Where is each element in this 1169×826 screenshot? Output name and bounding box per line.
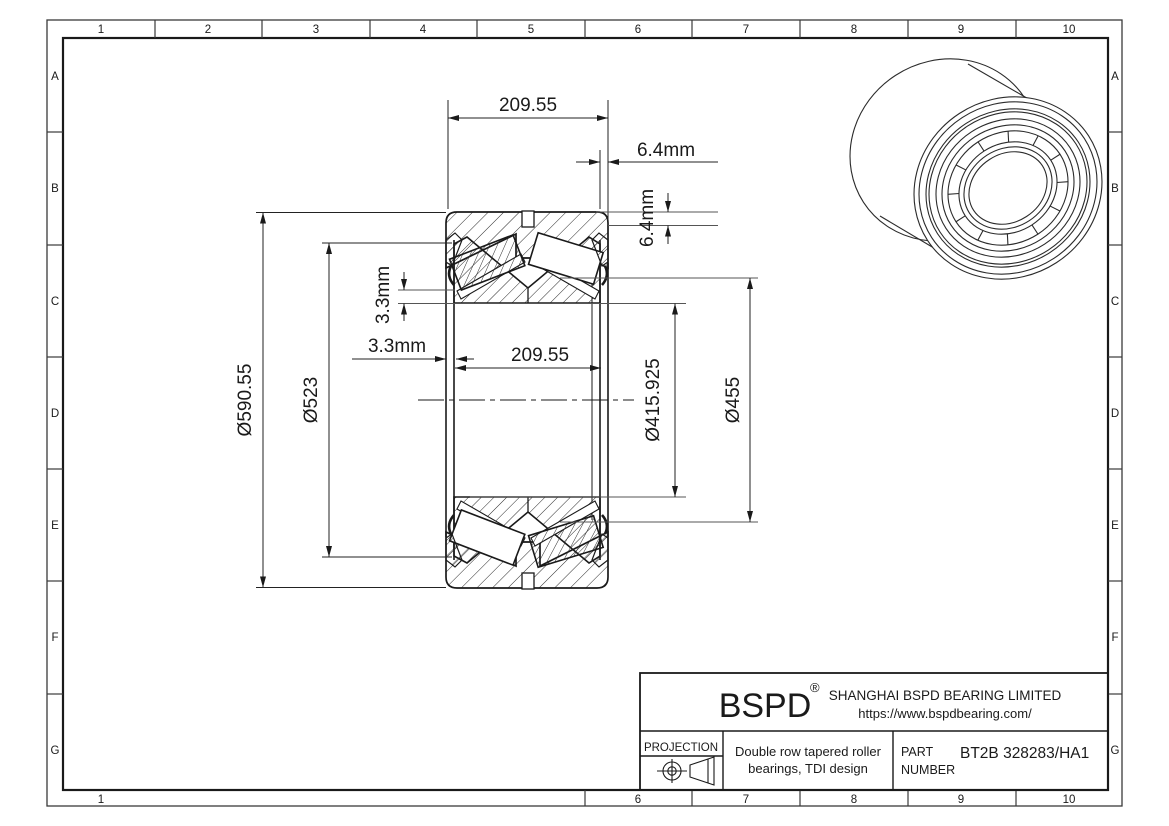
col-label: 2 bbox=[205, 24, 211, 36]
projection-label: PROJECTION bbox=[644, 742, 718, 754]
row-label-right: A bbox=[1111, 71, 1119, 83]
cross-section-view bbox=[418, 211, 634, 589]
row-label: E bbox=[51, 520, 59, 532]
row-label: A bbox=[51, 71, 59, 83]
row-label-right: B bbox=[1111, 183, 1119, 195]
col-label: 6 bbox=[635, 24, 641, 36]
dim-inner-ring-diameter: Ø455 bbox=[723, 377, 744, 423]
col-label: 4 bbox=[420, 24, 427, 36]
dim-inner-width: 209.55 bbox=[511, 345, 569, 366]
col-label: 8 bbox=[851, 24, 857, 36]
part-label-line2: NUMBER bbox=[901, 763, 955, 777]
col-label: 10 bbox=[1063, 24, 1076, 36]
col-label-bottom: 9 bbox=[958, 794, 964, 806]
row-label-right: E bbox=[1111, 520, 1119, 532]
col-label: 7 bbox=[743, 24, 749, 36]
company-logo: BSPD bbox=[719, 687, 812, 725]
isometric-view bbox=[815, 23, 1137, 315]
col-label: 1 bbox=[98, 24, 104, 36]
col-label-bottom: 1 bbox=[98, 794, 104, 806]
dim-outer-diameter: Ø590.55 bbox=[235, 364, 256, 437]
row-label: B bbox=[51, 183, 59, 195]
bottom-band-dividers bbox=[585, 790, 1016, 806]
registered-mark: ® bbox=[810, 680, 820, 695]
lube-hole bbox=[522, 573, 534, 589]
dim-left-offset-v: 3.3mm bbox=[373, 266, 394, 324]
col-label-bottom: 10 bbox=[1063, 794, 1076, 806]
cage-hook bbox=[602, 515, 607, 534]
dim-right-offset-h: 6.4mm bbox=[637, 140, 695, 161]
col-label-bottom: 8 bbox=[851, 794, 857, 806]
top-band-dividers bbox=[155, 20, 1016, 38]
lube-hole bbox=[522, 211, 534, 227]
title-block: BSPD ® SHANGHAI BSPD BEARING LIMITED htt… bbox=[640, 673, 1108, 790]
row-label: F bbox=[51, 632, 58, 644]
dim-bore-diameter: Ø415.925 bbox=[643, 358, 664, 441]
dim-top-width: 209.55 bbox=[499, 95, 557, 116]
row-label-right: D bbox=[1111, 408, 1119, 420]
engineering-drawing-page: { "frame": { "cols": ["1","2","3","4","5… bbox=[0, 0, 1169, 826]
row-label-right: F bbox=[1111, 632, 1118, 644]
dim-right-offset-v: 6.4mm bbox=[637, 189, 658, 247]
drawing-canvas: 1 2 3 4 5 6 7 8 9 10 1 6 7 8 9 10 A B C … bbox=[0, 0, 1169, 826]
company-website: https://www.bspdbearing.com/ bbox=[858, 706, 1032, 721]
part-number-value: BT2B 328283/HA1 bbox=[960, 745, 1089, 762]
row-label-right: C bbox=[1111, 296, 1119, 308]
col-label-bottom: 6 bbox=[635, 794, 641, 806]
section-bottom-half bbox=[446, 497, 608, 589]
company-name: SHANGHAI BSPD BEARING LIMITED bbox=[829, 688, 1062, 703]
col-label: 3 bbox=[313, 24, 319, 36]
col-label: 5 bbox=[528, 24, 534, 36]
dim-left-offset-h: 3.3mm bbox=[368, 336, 426, 357]
part-description-line2: bearings, TDI design bbox=[748, 761, 868, 776]
part-label-line1: PART bbox=[901, 745, 934, 759]
first-angle-projection-icon bbox=[657, 757, 714, 785]
col-label-bottom: 7 bbox=[743, 794, 749, 806]
row-label: G bbox=[51, 745, 60, 757]
dim-flange-diameter: Ø523 bbox=[301, 377, 322, 423]
cage-hook bbox=[602, 266, 607, 285]
part-description-line1: Double row tapered roller bbox=[735, 744, 882, 759]
row-label: C bbox=[51, 296, 59, 308]
row-label: D bbox=[51, 408, 59, 420]
row-label-right: G bbox=[1111, 745, 1120, 757]
section-top-half bbox=[446, 211, 608, 303]
col-label: 9 bbox=[958, 24, 964, 36]
